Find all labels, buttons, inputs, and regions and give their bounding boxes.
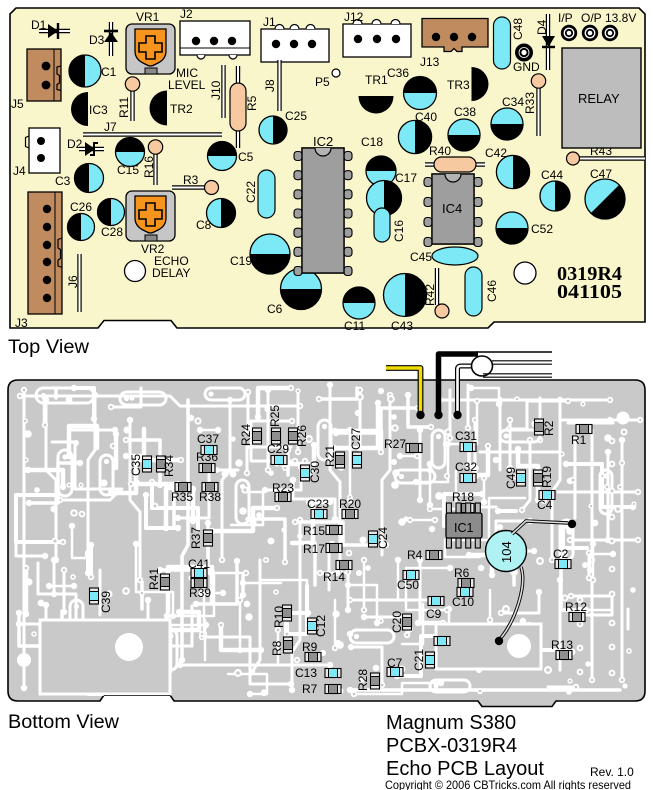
svg-text:IC1: IC1 — [454, 521, 474, 535]
svg-text:R26: R26 — [295, 425, 309, 447]
svg-text:C50: C50 — [397, 578, 419, 592]
svg-text:P5: P5 — [315, 75, 330, 89]
svg-text:C17: C17 — [395, 171, 417, 185]
svg-text:C13: C13 — [295, 666, 317, 680]
svg-text:C24: C24 — [376, 527, 390, 549]
svg-text:TR1: TR1 — [365, 73, 388, 87]
svg-text:C21: C21 — [412, 649, 426, 671]
svg-text:R23: R23 — [272, 481, 294, 495]
svg-text:C38: C38 — [454, 105, 476, 119]
svg-text:C7: C7 — [387, 656, 403, 670]
svg-text:C23: C23 — [307, 497, 329, 511]
svg-text:C44: C44 — [541, 168, 563, 182]
svg-text:C45: C45 — [410, 250, 432, 264]
svg-text:C46: C46 — [485, 280, 499, 302]
svg-text:R37: R37 — [189, 527, 203, 549]
svg-text:R4: R4 — [407, 548, 423, 562]
svg-text:R8: R8 — [270, 640, 284, 656]
svg-text:R13: R13 — [551, 638, 573, 652]
svg-text:GND: GND — [513, 60, 540, 74]
svg-text:IC4: IC4 — [442, 201, 462, 216]
svg-text:R3: R3 — [183, 173, 199, 187]
svg-text:R6: R6 — [454, 566, 470, 580]
svg-text:041105: 041105 — [557, 281, 622, 303]
svg-text:J4: J4 — [13, 164, 26, 178]
svg-text:C31: C31 — [455, 429, 477, 443]
svg-text:J7: J7 — [104, 120, 117, 134]
svg-text:R7: R7 — [302, 682, 318, 696]
svg-text:C35: C35 — [129, 454, 143, 476]
svg-text:R21: R21 — [323, 445, 337, 467]
svg-text:R35: R35 — [171, 490, 193, 504]
svg-text:VR1: VR1 — [136, 10, 160, 24]
svg-text:C22: C22 — [244, 181, 258, 203]
svg-text:IC3: IC3 — [89, 103, 108, 117]
svg-text:C27: C27 — [349, 428, 363, 450]
svg-text:R9: R9 — [302, 640, 318, 654]
svg-text:C16: C16 — [392, 220, 406, 242]
svg-text:C34: C34 — [502, 95, 524, 109]
svg-text:C30: C30 — [308, 461, 322, 483]
svg-text:R2: R2 — [542, 420, 556, 436]
svg-text:R11: R11 — [117, 97, 131, 118]
svg-text:RELAY: RELAY — [578, 91, 620, 106]
svg-text:J13: J13 — [420, 55, 440, 69]
svg-text:C43: C43 — [391, 319, 413, 333]
svg-text:J3: J3 — [15, 316, 28, 330]
svg-text:C48: C48 — [511, 18, 525, 40]
svg-text:J1: J1 — [263, 15, 276, 29]
svg-text:LEVEL: LEVEL — [168, 78, 206, 92]
svg-text:C6: C6 — [267, 302, 283, 316]
svg-text:R38: R38 — [199, 490, 221, 504]
svg-text:R18: R18 — [452, 490, 474, 504]
svg-text:C28: C28 — [101, 225, 123, 239]
svg-text:R20: R20 — [339, 497, 361, 511]
svg-text:R27: R27 — [384, 437, 406, 451]
svg-text:Copyright © 2006 CBTricks.com: Copyright © 2006 CBTricks.com All rights… — [385, 778, 631, 790]
svg-text:Bottom View: Bottom View — [8, 712, 119, 733]
svg-text:PCBX-0319R4: PCBX-0319R4 — [386, 735, 517, 757]
svg-text:R28: R28 — [356, 669, 370, 691]
svg-text:C47: C47 — [590, 167, 612, 181]
svg-text:C39: C39 — [99, 591, 113, 613]
svg-text:R17: R17 — [303, 542, 325, 556]
svg-text:J8: J8 — [263, 79, 277, 92]
svg-text:C12: C12 — [314, 615, 328, 637]
svg-text:13.8V: 13.8V — [605, 11, 636, 25]
svg-text:C3: C3 — [55, 174, 71, 188]
svg-text:R19: R19 — [540, 466, 554, 488]
svg-text:C49: C49 — [504, 467, 518, 489]
svg-text:C11: C11 — [344, 319, 365, 333]
svg-text:R25: R25 — [268, 405, 282, 427]
svg-text:C4: C4 — [537, 498, 553, 512]
svg-text:J2: J2 — [180, 7, 193, 21]
svg-text:J10: J10 — [209, 80, 223, 100]
svg-text:C2: C2 — [553, 547, 569, 561]
svg-text:R24: R24 — [239, 424, 253, 446]
svg-text:C15: C15 — [117, 163, 139, 177]
svg-text:R15: R15 — [303, 524, 325, 538]
svg-text:C25: C25 — [285, 109, 307, 123]
svg-text:R40: R40 — [429, 144, 451, 158]
svg-text:104: 104 — [499, 541, 514, 563]
svg-text:C18: C18 — [361, 135, 383, 149]
svg-text:R5: R5 — [245, 95, 259, 111]
svg-text:C19: C19 — [230, 254, 252, 268]
svg-text:TR3: TR3 — [447, 78, 470, 92]
svg-text:TR2: TR2 — [170, 102, 193, 116]
svg-text:R14: R14 — [323, 570, 345, 584]
svg-text:R1: R1 — [571, 433, 587, 447]
svg-text:IC2: IC2 — [313, 134, 333, 149]
svg-text:C52: C52 — [531, 222, 553, 236]
svg-text:DELAY: DELAY — [152, 266, 190, 280]
svg-text:C8: C8 — [196, 218, 212, 232]
svg-text:Top View: Top View — [8, 337, 89, 358]
svg-text:Magnum S380: Magnum S380 — [386, 712, 516, 734]
svg-text:R16: R16 — [142, 156, 156, 178]
svg-text:J12: J12 — [344, 10, 364, 24]
svg-text:C10: C10 — [452, 595, 474, 609]
svg-text:C37: C37 — [197, 432, 219, 446]
svg-text:R33: R33 — [523, 92, 537, 114]
svg-text:O/P: O/P — [581, 11, 602, 25]
svg-text:C20: C20 — [390, 611, 404, 633]
svg-text:C41: C41 — [188, 557, 210, 571]
svg-text:C32: C32 — [455, 460, 477, 474]
svg-text:Echo PCB Layout: Echo PCB Layout — [386, 758, 544, 780]
svg-text:R41: R41 — [147, 568, 161, 590]
svg-text:R34: R34 — [162, 455, 176, 477]
svg-text:R12: R12 — [565, 600, 587, 614]
svg-text:J5: J5 — [11, 97, 24, 111]
svg-text:I/P: I/P — [558, 11, 573, 25]
svg-text:R39: R39 — [189, 586, 211, 600]
svg-text:C1: C1 — [101, 65, 117, 79]
svg-text:C36: C36 — [387, 66, 409, 80]
svg-text:C5: C5 — [238, 150, 254, 164]
svg-text:C42: C42 — [485, 146, 507, 160]
svg-text:J6: J6 — [66, 275, 80, 288]
svg-text:C29: C29 — [267, 442, 289, 456]
svg-text:C26: C26 — [70, 200, 92, 214]
svg-text:R10: R10 — [272, 606, 286, 628]
svg-text:D3: D3 — [89, 33, 105, 47]
svg-text:C40: C40 — [415, 110, 437, 124]
svg-text:C9: C9 — [426, 607, 442, 621]
svg-text:Rev. 1.0: Rev. 1.0 — [590, 765, 634, 779]
